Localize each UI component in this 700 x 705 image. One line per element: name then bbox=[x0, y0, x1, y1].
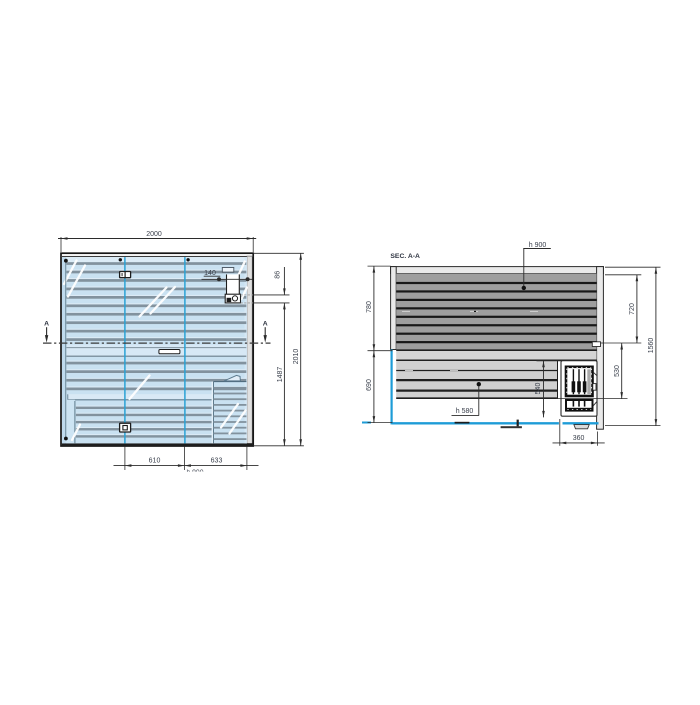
svg-text:86: 86 bbox=[275, 271, 282, 279]
svg-text:540: 540 bbox=[535, 383, 542, 395]
svg-text:1560: 1560 bbox=[648, 338, 655, 354]
svg-text:A: A bbox=[263, 321, 268, 328]
svg-text:610: 610 bbox=[149, 457, 161, 464]
svg-text:2000: 2000 bbox=[146, 231, 162, 238]
svg-text:140: 140 bbox=[204, 270, 216, 277]
svg-text:633: 633 bbox=[211, 457, 223, 464]
svg-text:SEC. A-A: SEC. A-A bbox=[390, 253, 420, 260]
svg-text:780: 780 bbox=[366, 301, 373, 313]
svg-text:h 900: h 900 bbox=[529, 242, 547, 249]
svg-text:A: A bbox=[44, 321, 49, 328]
svg-text:h 580: h 580 bbox=[456, 408, 474, 415]
svg-text:2010: 2010 bbox=[293, 349, 300, 365]
svg-text:690: 690 bbox=[366, 379, 373, 391]
svg-text:720: 720 bbox=[629, 303, 636, 315]
svg-text:1487: 1487 bbox=[277, 367, 284, 383]
svg-text:530: 530 bbox=[614, 365, 621, 377]
svg-text:360: 360 bbox=[573, 435, 585, 442]
